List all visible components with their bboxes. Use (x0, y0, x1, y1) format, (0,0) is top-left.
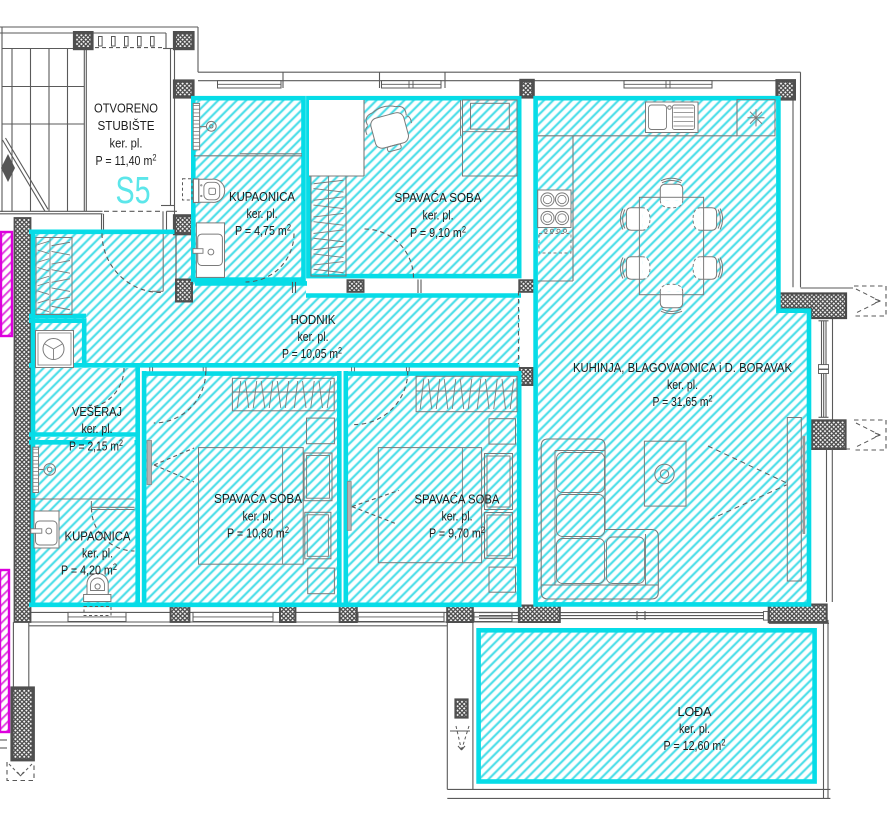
svg-text:STUBIŠTE: STUBIŠTE (98, 118, 155, 133)
svg-text:ker. pl.: ker. pl. (243, 510, 274, 524)
svg-text:ker. pl.: ker. pl. (679, 722, 710, 736)
svg-text:KUHINJA, BLAGOVAONICA i D. BOR: KUHINJA, BLAGOVAONICA i D. BORAVAK (573, 361, 793, 375)
svg-text:P = 4,20 m2: P = 4,20 m2 (61, 562, 117, 578)
svg-text:P = 10,05 m2: P = 10,05 m2 (282, 346, 342, 362)
svg-text:ker. pl.: ker. pl. (247, 207, 278, 221)
svg-text:KUPAONICA: KUPAONICA (65, 530, 132, 544)
svg-text:SPAVAĆA SOBA: SPAVAĆA SOBA (395, 190, 483, 205)
svg-text:P = 9,10 m2: P = 9,10 m2 (410, 225, 466, 241)
svg-text:P = 2,15 m2: P = 2,15 m2 (69, 438, 123, 454)
svg-text:P = 9,70 m2: P = 9,70 m2 (429, 525, 485, 541)
svg-text:P = 12,60 m2: P = 12,60 m2 (664, 738, 726, 754)
svg-text:ker. pl.: ker. pl. (667, 378, 698, 392)
svg-text:S5: S5 (116, 170, 151, 212)
svg-text:ker. pl.: ker. pl. (110, 137, 143, 151)
svg-text:ker. pl.: ker. pl. (82, 422, 113, 436)
svg-text:ker. pl.: ker. pl. (442, 510, 473, 524)
svg-text:OTVORENO: OTVORENO (94, 102, 158, 116)
svg-text:ker. pl.: ker. pl. (82, 547, 113, 561)
svg-text:ker. pl.: ker. pl. (298, 330, 329, 344)
svg-text:VEŠERAJ: VEŠERAJ (72, 404, 122, 419)
svg-text:SPAVAĆA SOBA: SPAVAĆA SOBA (214, 491, 303, 506)
svg-text:KUPAONICA: KUPAONICA (229, 190, 296, 204)
svg-text:LOĐA: LOĐA (678, 705, 713, 719)
svg-text:P = 4,75 m2: P = 4,75 m2 (235, 223, 291, 239)
svg-text:P = 31,65 m2: P = 31,65 m2 (653, 394, 713, 410)
svg-text:SPAVAĆA SOBA: SPAVAĆA SOBA (415, 492, 501, 507)
svg-text:ker. pl.: ker. pl. (423, 209, 454, 223)
svg-text:HODNIK: HODNIK (291, 313, 337, 327)
svg-text:P = 10,80 m2: P = 10,80 m2 (227, 525, 289, 541)
svg-text:P = 11,40 m2: P = 11,40 m2 (96, 153, 157, 169)
